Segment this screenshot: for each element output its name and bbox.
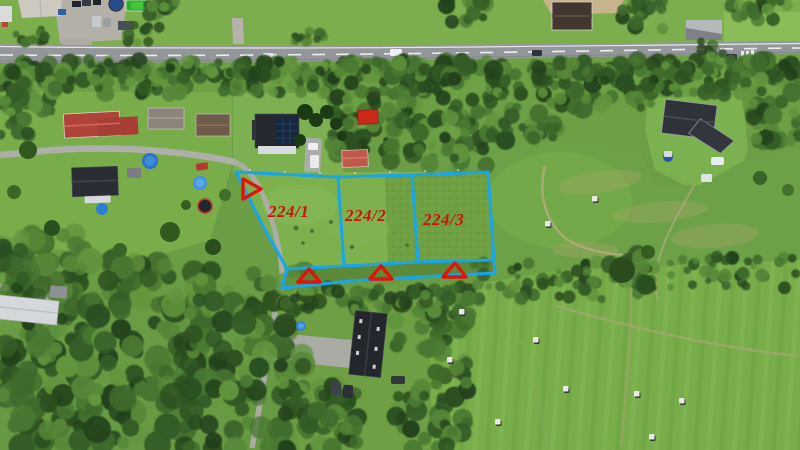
hay-bale bbox=[649, 434, 655, 440]
entrance-lane bbox=[232, 18, 244, 44]
hay-bale bbox=[563, 386, 569, 392]
parked-car bbox=[331, 382, 342, 396]
vehicle bbox=[532, 50, 542, 56]
hay-bale bbox=[447, 357, 453, 363]
roadside-house-roof bbox=[552, 2, 592, 30]
hay-bale bbox=[679, 398, 685, 404]
salmon-roof-house bbox=[342, 150, 369, 168]
white-van bbox=[310, 155, 319, 168]
hay-bale bbox=[495, 419, 501, 425]
white-van bbox=[92, 16, 101, 27]
trampoline bbox=[198, 199, 212, 213]
parked-car bbox=[72, 1, 81, 7]
hay-bale bbox=[592, 196, 598, 202]
hay-bale bbox=[459, 309, 465, 315]
parcel-label-3: 224/3 bbox=[422, 210, 464, 229]
aerial-photo-canvas: 224/1 224/2 224/3 bbox=[0, 0, 800, 450]
long-barn-building bbox=[349, 311, 388, 378]
parcel-label-1: 224/1 bbox=[267, 202, 309, 221]
gray-barn bbox=[148, 108, 184, 129]
hay-bale bbox=[545, 221, 551, 227]
gray-shed bbox=[686, 20, 722, 40]
white-car bbox=[308, 143, 318, 150]
parked-car bbox=[391, 376, 405, 384]
hay-bale bbox=[533, 337, 539, 343]
parked-car bbox=[58, 9, 66, 15]
solar-roof-house bbox=[252, 114, 299, 154]
parked-car bbox=[82, 0, 91, 6]
parked-car bbox=[343, 385, 354, 399]
red-shed bbox=[358, 110, 378, 125]
small-shed bbox=[50, 285, 68, 298]
garden-shed bbox=[127, 168, 141, 178]
trailer bbox=[103, 18, 111, 27]
parked-car bbox=[93, 0, 101, 5]
white-car bbox=[711, 157, 724, 165]
trampoline bbox=[109, 0, 123, 11]
terrace bbox=[258, 146, 296, 154]
white-building bbox=[0, 6, 12, 22]
swimming-pool bbox=[96, 203, 108, 215]
brown-roof-house bbox=[196, 114, 230, 136]
hay-bale bbox=[634, 391, 640, 397]
garden-furniture bbox=[664, 151, 672, 157]
aerial-photo: 224/1 224/2 224/3 bbox=[0, 0, 800, 450]
roadside-north bbox=[0, 0, 800, 48]
white-tent bbox=[701, 174, 712, 182]
parcel-label-2: 224/2 bbox=[344, 206, 386, 225]
